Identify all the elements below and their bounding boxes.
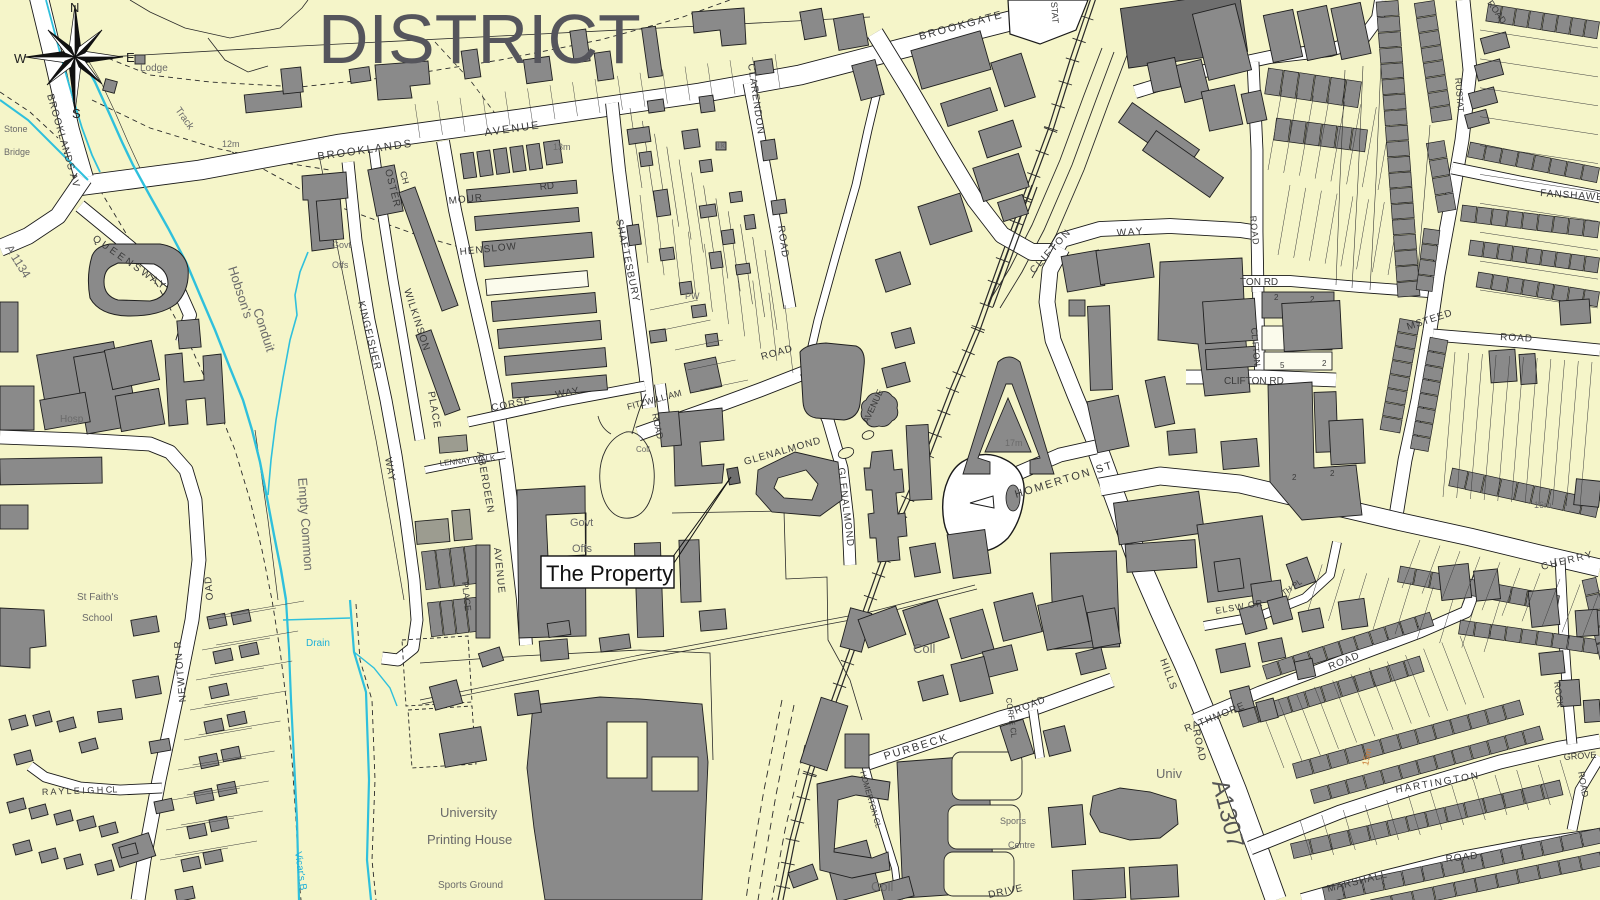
- svg-text:2: 2: [1330, 469, 1335, 478]
- svg-text:Govt: Govt: [332, 240, 352, 250]
- svg-text:DISTRICT: DISTRICT: [318, 0, 641, 78]
- svg-text:St Faith's: St Faith's: [77, 592, 118, 603]
- svg-text:S: S: [72, 106, 81, 121]
- svg-text:E: E: [126, 50, 135, 65]
- svg-text:Govt: Govt: [570, 517, 593, 529]
- svg-text:The Property: The Property: [546, 561, 673, 586]
- svg-text:Offs: Offs: [332, 260, 349, 270]
- svg-text:2: 2: [1310, 295, 1315, 304]
- svg-text:Coll: Coll: [913, 641, 936, 656]
- svg-text:PW: PW: [685, 291, 700, 301]
- svg-text:Drain: Drain: [306, 638, 330, 649]
- svg-text:TON RD: TON RD: [1240, 277, 1278, 288]
- svg-text:Tk: Tk: [716, 141, 726, 150]
- svg-text:OAD: OAD: [203, 575, 216, 601]
- svg-text:13m: 13m: [553, 142, 571, 152]
- svg-text:CLIFTON RD: CLIFTON RD: [1224, 376, 1284, 387]
- svg-text:W: W: [14, 51, 27, 66]
- svg-text:N: N: [70, 0, 79, 15]
- svg-text:Sports: Sports: [1000, 816, 1027, 826]
- svg-text:School: School: [82, 613, 113, 624]
- svg-text:2: 2: [1322, 359, 1327, 368]
- svg-text:17m: 17m: [1005, 438, 1023, 448]
- svg-text:Lodge: Lodge: [140, 63, 168, 74]
- svg-text:Offs: Offs: [572, 543, 592, 555]
- svg-text:WAY: WAY: [1116, 226, 1144, 239]
- svg-text:STAT: STAT: [1049, 1, 1061, 24]
- svg-text:Centre: Centre: [1008, 840, 1035, 850]
- svg-text:Hosp: Hosp: [60, 414, 84, 425]
- svg-text:Stone: Stone: [4, 124, 28, 134]
- svg-text:Coll: Coll: [871, 879, 894, 894]
- svg-text:University: University: [440, 805, 498, 820]
- svg-text:5: 5: [1280, 361, 1285, 370]
- svg-text:Univ: Univ: [1156, 766, 1183, 781]
- svg-text:16m: 16m: [1534, 500, 1552, 510]
- svg-text:ROAD: ROAD: [1500, 332, 1533, 345]
- svg-text:Bridge: Bridge: [4, 147, 30, 157]
- svg-text:2: 2: [1274, 293, 1279, 302]
- svg-text:RD: RD: [539, 181, 555, 193]
- svg-text:Coll: Coll: [636, 445, 650, 454]
- svg-text:Sports Ground: Sports Ground: [438, 880, 503, 891]
- svg-text:12m: 12m: [222, 139, 240, 149]
- svg-text:2: 2: [1292, 473, 1297, 482]
- svg-text:Printing House: Printing House: [427, 832, 512, 847]
